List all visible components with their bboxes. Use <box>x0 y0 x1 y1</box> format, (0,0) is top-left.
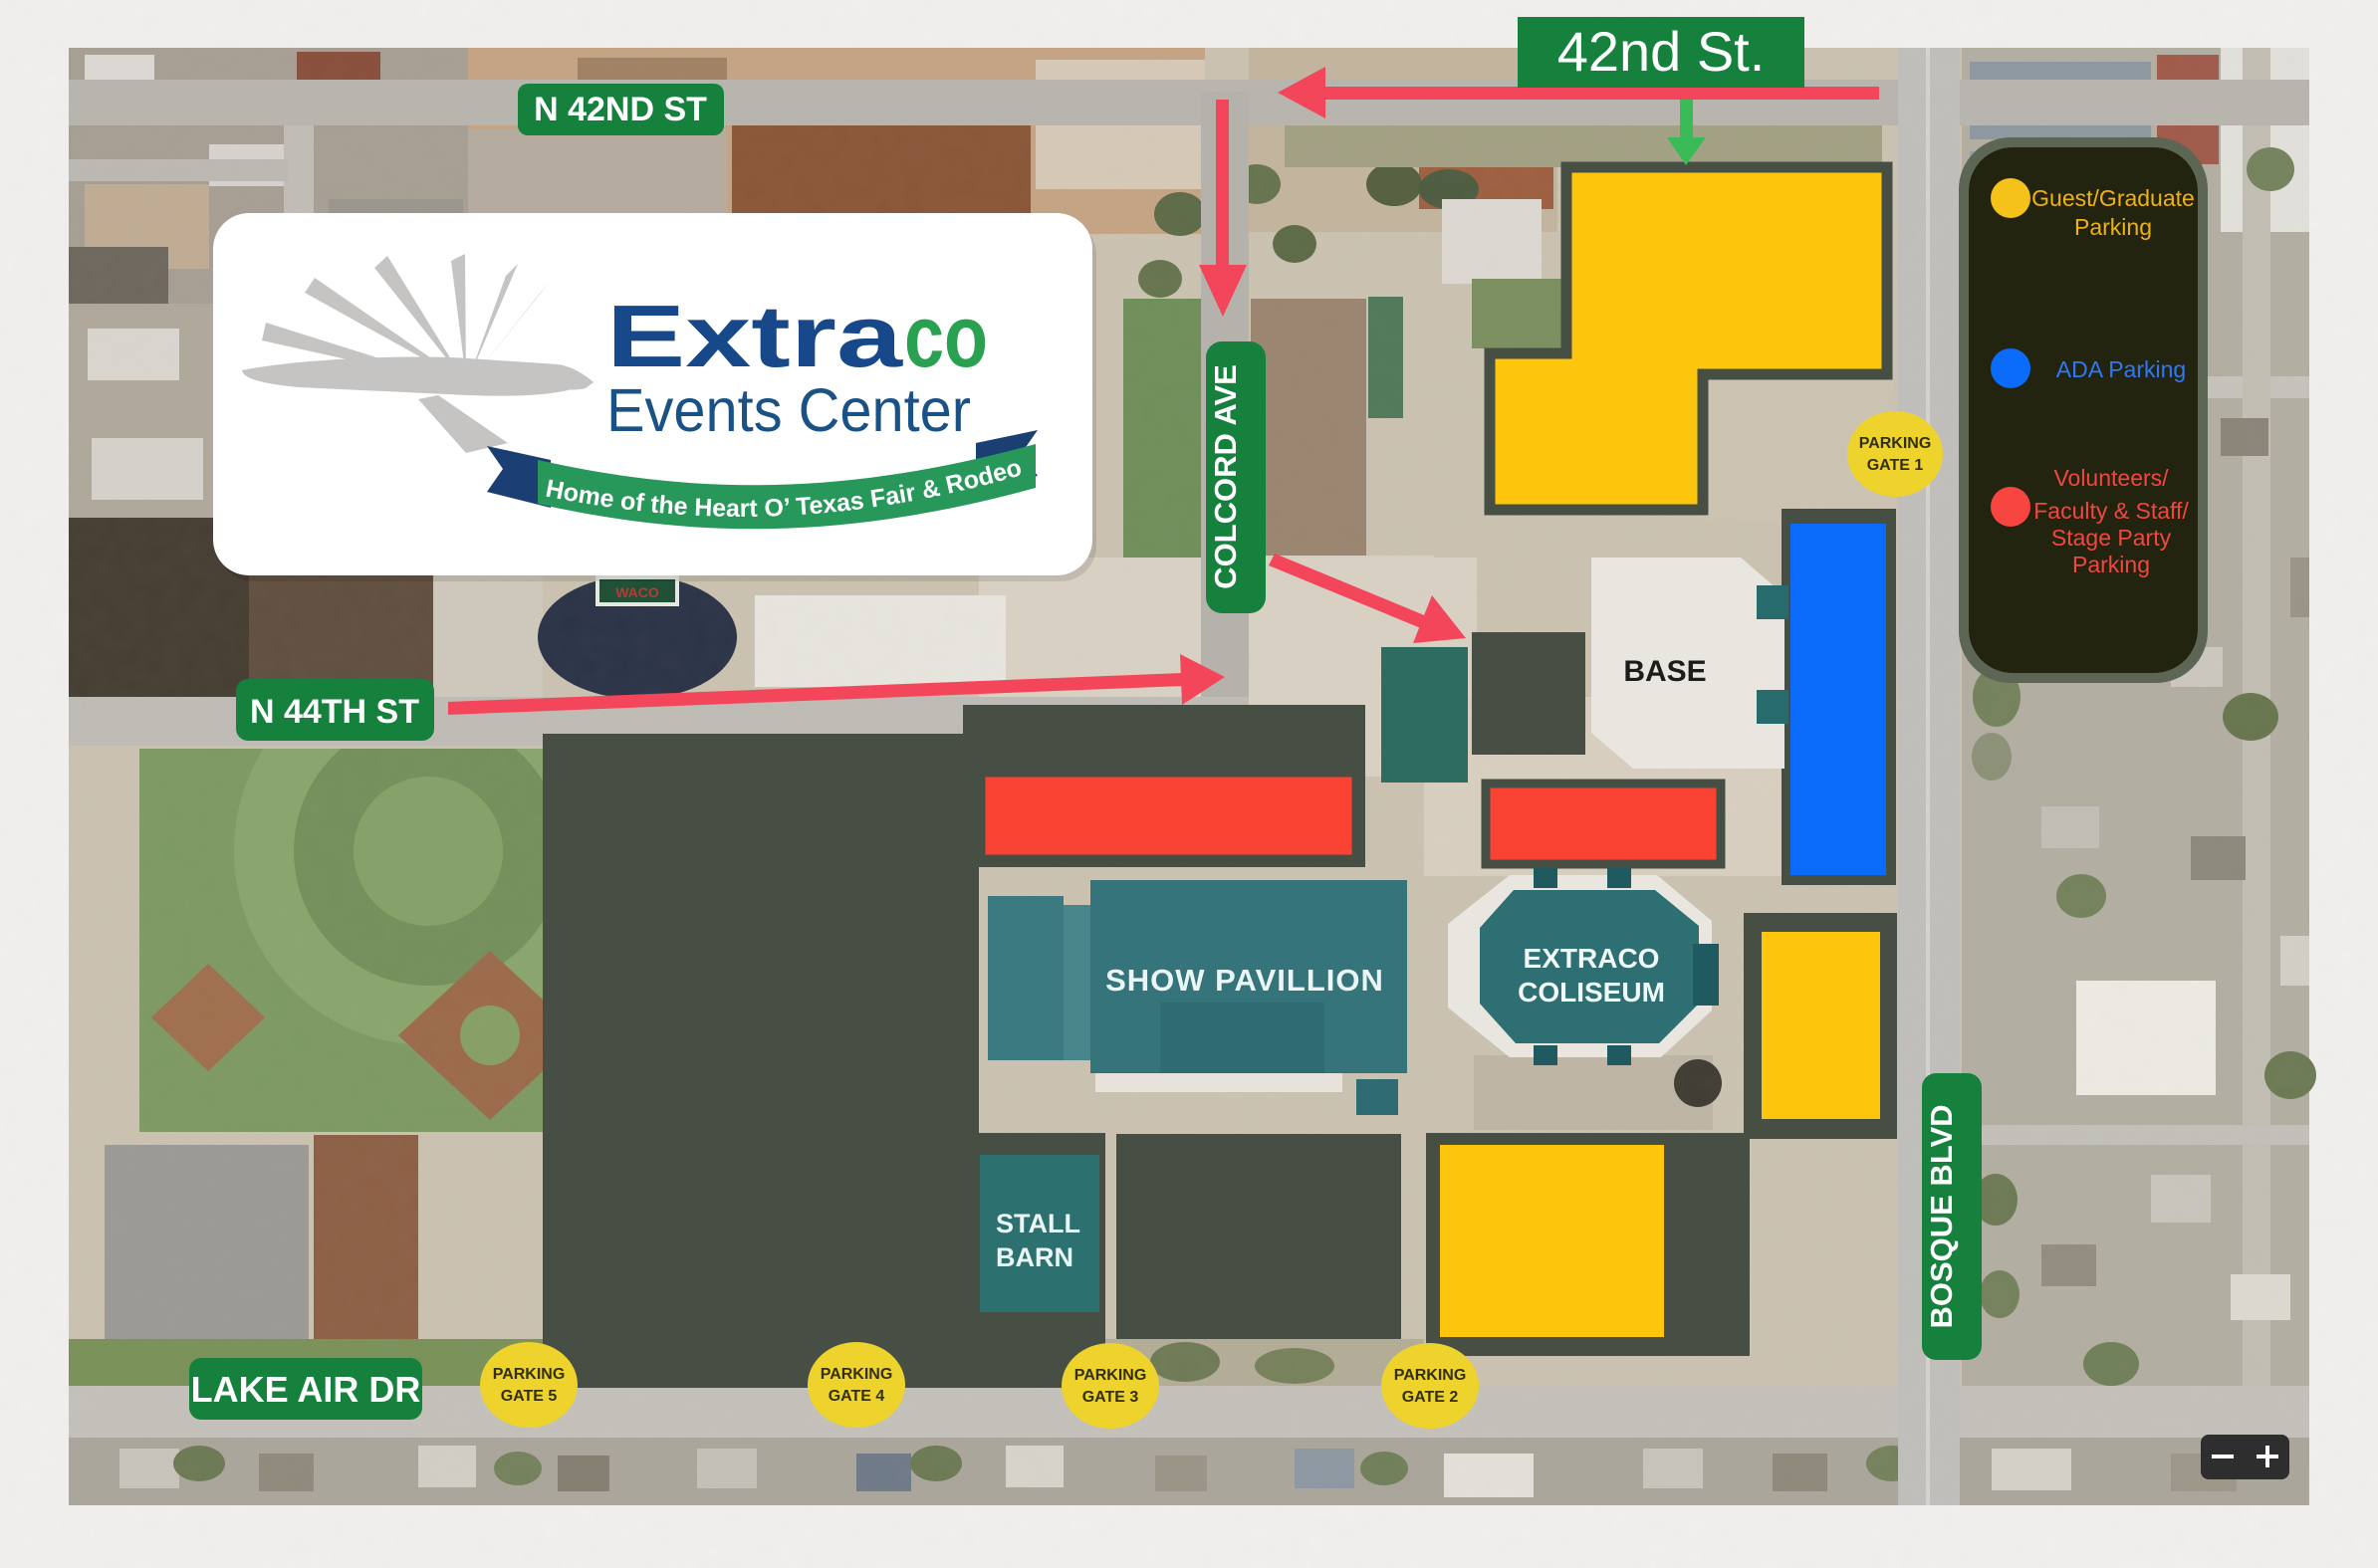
svg-text:42nd St.: 42nd St. <box>1557 20 1766 83</box>
svg-text:PARKING: PARKING <box>493 1366 566 1383</box>
svg-text:GATE 5: GATE 5 <box>501 1388 558 1405</box>
svg-text:BOSQUE BLVD: BOSQUE BLVD <box>1924 1104 1959 1328</box>
svg-text:Parking: Parking <box>2072 552 2150 577</box>
svg-text:EXTRACO: EXTRACO <box>1524 943 1660 974</box>
svg-text:Guest/Graduate: Guest/Graduate <box>2031 185 2195 211</box>
svg-text:GATE 3: GATE 3 <box>1082 1389 1139 1406</box>
svg-text:COLISEUM: COLISEUM <box>1518 977 1665 1008</box>
svg-text:LAKE AIR DR: LAKE AIR DR <box>191 1369 421 1410</box>
svg-text:Faculty & Staff/: Faculty & Staff/ <box>2033 498 2189 524</box>
svg-text:GATE 4: GATE 4 <box>829 1388 885 1405</box>
svg-text:Volunteers/: Volunteers/ <box>2053 465 2169 491</box>
svg-text:N 44TH ST: N 44TH ST <box>250 693 419 731</box>
svg-text:co: co <box>904 287 988 385</box>
svg-text:Events Center: Events Center <box>606 376 971 444</box>
svg-text:BASE: BASE <box>1623 655 1706 688</box>
svg-text:N 42ND ST: N 42ND ST <box>534 91 707 128</box>
svg-text:Parking: Parking <box>2074 214 2152 240</box>
svg-text:STALL: STALL <box>996 1209 1080 1238</box>
svg-text:ADA Parking: ADA Parking <box>2056 356 2186 382</box>
svg-text:Stage Party: Stage Party <box>2051 525 2172 551</box>
svg-text:PARKING: PARKING <box>821 1366 893 1383</box>
svg-text:GATE 2: GATE 2 <box>1402 1389 1459 1406</box>
svg-text:Extra: Extra <box>606 287 903 385</box>
svg-text:BARN: BARN <box>996 1242 1073 1272</box>
svg-text:PARKING: PARKING <box>1394 1367 1467 1384</box>
svg-text:COLCORD AVE: COLCORD AVE <box>1208 364 1243 589</box>
svg-text:PARKING: PARKING <box>1859 435 1932 452</box>
svg-text:SHOW PAVILLION: SHOW PAVILLION <box>1105 963 1384 998</box>
svg-text:GATE 1: GATE 1 <box>1867 457 1924 474</box>
svg-text:PARKING: PARKING <box>1074 1367 1147 1384</box>
